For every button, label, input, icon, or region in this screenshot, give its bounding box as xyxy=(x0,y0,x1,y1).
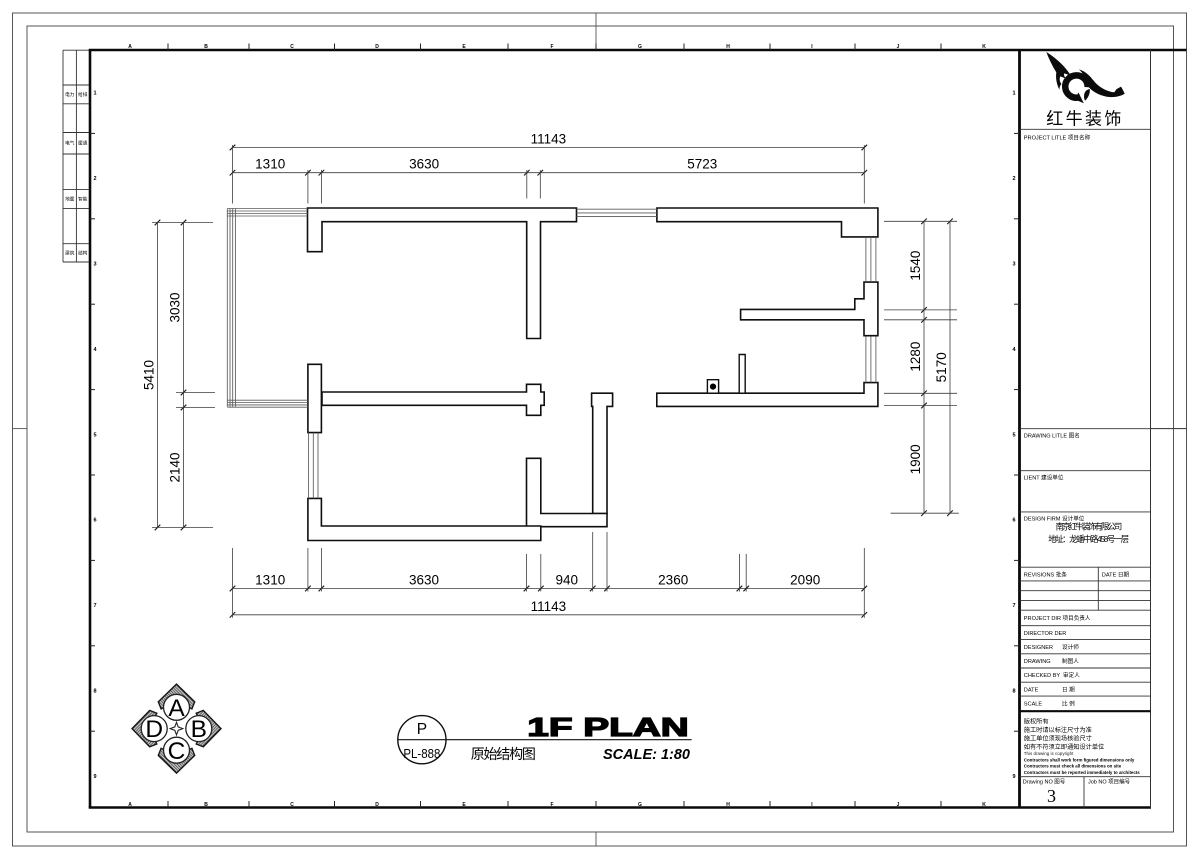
svg-text:DATE 日期: DATE 日期 xyxy=(1102,572,1130,579)
svg-text:5: 5 xyxy=(93,432,96,438)
svg-text:DIRECTOR DER: DIRECTOR DER xyxy=(1024,631,1066,637)
svg-text:B: B xyxy=(191,716,207,743)
svg-text:D: D xyxy=(145,716,163,743)
svg-text:智能: 智能 xyxy=(78,196,88,203)
svg-text:SCALE: 1:80: SCALE: 1:80 xyxy=(603,747,690,763)
svg-text:1280: 1280 xyxy=(908,342,923,372)
svg-text:1310: 1310 xyxy=(255,572,285,587)
svg-text:审定人: 审定人 xyxy=(1063,671,1080,679)
svg-text:电力: 电力 xyxy=(65,91,75,98)
svg-text:2: 2 xyxy=(1012,176,1015,182)
svg-text:11143: 11143 xyxy=(531,599,567,614)
svg-text:6: 6 xyxy=(1012,518,1015,524)
svg-text:A: A xyxy=(128,44,132,50)
svg-text:H: H xyxy=(726,802,730,808)
svg-text:A: A xyxy=(168,695,185,722)
svg-text:9: 9 xyxy=(1012,774,1015,780)
svg-text:LIENT 建设单位: LIENT 建设单位 xyxy=(1024,474,1064,482)
svg-text:给排: 给排 xyxy=(78,91,88,98)
svg-text:电气: 电气 xyxy=(65,140,75,146)
svg-text:D: D xyxy=(375,44,379,50)
svg-text:C: C xyxy=(290,802,294,808)
svg-text:1F PLAN: 1F PLAN xyxy=(527,714,689,742)
svg-text:地暖: 地暖 xyxy=(65,196,75,203)
svg-text:G: G xyxy=(638,802,642,808)
svg-text:PROJECT DIR 项目负责人: PROJECT DIR 项目负责人 xyxy=(1024,614,1091,622)
svg-text:7: 7 xyxy=(93,603,96,609)
svg-text:G: G xyxy=(638,44,642,50)
svg-text:C: C xyxy=(168,738,186,765)
svg-text:REVISIONS 批条: REVISIONS 批条 xyxy=(1024,571,1068,579)
svg-text:比 例: 比 例 xyxy=(1062,700,1075,708)
svg-text:B: B xyxy=(204,44,208,50)
svg-text:Drawing NO 图号: Drawing NO 图号 xyxy=(1023,778,1066,786)
svg-text:6: 6 xyxy=(93,518,96,524)
svg-text:8: 8 xyxy=(93,689,96,695)
svg-text:3030: 3030 xyxy=(168,292,183,322)
svg-text:如有不符须立即通知设计单位: 如有不符须立即通知设计单位 xyxy=(1024,743,1104,751)
svg-text:PROJECT LITLE 项目名称: PROJECT LITLE 项目名称 xyxy=(1024,134,1091,142)
svg-text:南京红牛装饰有限公司: 南京红牛装饰有限公司 xyxy=(1056,522,1122,532)
svg-text:3: 3 xyxy=(1012,262,1015,268)
svg-text:版权所有: 版权所有 xyxy=(1024,718,1049,726)
svg-text:SCALE: SCALE xyxy=(1024,702,1043,708)
svg-text:F: F xyxy=(550,44,553,50)
svg-text:1310: 1310 xyxy=(255,157,285,172)
svg-text:8: 8 xyxy=(1012,689,1015,695)
svg-text:3630: 3630 xyxy=(409,572,439,587)
svg-text:9: 9 xyxy=(93,774,96,780)
svg-text:日 期: 日 期 xyxy=(1062,687,1075,694)
svg-text:结构: 结构 xyxy=(78,249,88,256)
svg-text:地址：龙蟠中路458号一层: 地址：龙蟠中路458号一层 xyxy=(1048,534,1129,544)
svg-text:建筑: 建筑 xyxy=(65,249,75,256)
svg-text:C: C xyxy=(290,44,294,50)
svg-text:940: 940 xyxy=(556,572,579,587)
svg-text:11143: 11143 xyxy=(531,132,567,147)
svg-text:2090: 2090 xyxy=(790,572,820,587)
svg-text:2140: 2140 xyxy=(168,452,183,482)
svg-text:DRAWING: DRAWING xyxy=(1024,659,1051,665)
svg-text:2: 2 xyxy=(93,176,96,182)
svg-text:This drawing is copyright: This drawing is copyright xyxy=(1024,751,1074,756)
svg-text:1: 1 xyxy=(93,91,96,97)
svg-text:原始结构图: 原始结构图 xyxy=(471,746,535,762)
svg-text:7: 7 xyxy=(1012,603,1015,609)
svg-text:5410: 5410 xyxy=(142,360,157,390)
svg-text:2360: 2360 xyxy=(658,572,688,587)
svg-text:J: J xyxy=(897,802,900,808)
svg-text:施工单位须现场核验尺寸: 施工单位须现场核验尺寸 xyxy=(1024,735,1092,743)
svg-text:1900: 1900 xyxy=(908,444,923,474)
svg-text:Contractors must be reported i: Contractors must be reported immediately… xyxy=(1024,770,1140,775)
svg-text:3: 3 xyxy=(93,262,96,268)
svg-text:K: K xyxy=(982,802,986,808)
svg-text:Contractors shall work form fi: Contractors shall work form figured dime… xyxy=(1024,757,1135,762)
svg-text:J: J xyxy=(897,44,900,50)
svg-text:施工时请以标注尺寸为准: 施工时请以标注尺寸为准 xyxy=(1024,726,1092,734)
svg-text:5723: 5723 xyxy=(687,157,717,172)
svg-text:DESIGNER: DESIGNER xyxy=(1024,645,1053,651)
svg-text:5170: 5170 xyxy=(934,352,949,382)
svg-text:1: 1 xyxy=(1012,91,1015,97)
svg-text:Contractors must check all dim: Contractors must check all dimensions on… xyxy=(1024,764,1122,769)
svg-text:3630: 3630 xyxy=(409,157,439,172)
svg-text:5: 5 xyxy=(1012,432,1015,438)
svg-text:A: A xyxy=(128,802,132,808)
svg-text:PL-888: PL-888 xyxy=(403,746,440,761)
svg-text:Job NO 项目编号: Job NO 项目编号 xyxy=(1088,778,1131,786)
svg-text:红牛装饰: 红牛装饰 xyxy=(1046,110,1124,129)
svg-text:DRAWING LITLE 图名: DRAWING LITLE 图名 xyxy=(1024,432,1080,440)
svg-text:暖通: 暖通 xyxy=(78,140,88,147)
svg-text:K: K xyxy=(982,44,986,50)
svg-text:DATE: DATE xyxy=(1024,688,1039,694)
svg-text:设计师: 设计师 xyxy=(1062,643,1079,651)
svg-text:D: D xyxy=(375,802,379,808)
svg-text:制图人: 制图人 xyxy=(1062,657,1079,665)
svg-text:F: F xyxy=(550,802,553,808)
svg-text:P: P xyxy=(417,721,427,738)
svg-text:B: B xyxy=(204,802,208,808)
svg-text:H: H xyxy=(726,44,730,50)
svg-text:1540: 1540 xyxy=(908,251,923,281)
svg-text:3: 3 xyxy=(1047,786,1056,806)
svg-text:CHECKED BY: CHECKED BY xyxy=(1024,673,1061,679)
